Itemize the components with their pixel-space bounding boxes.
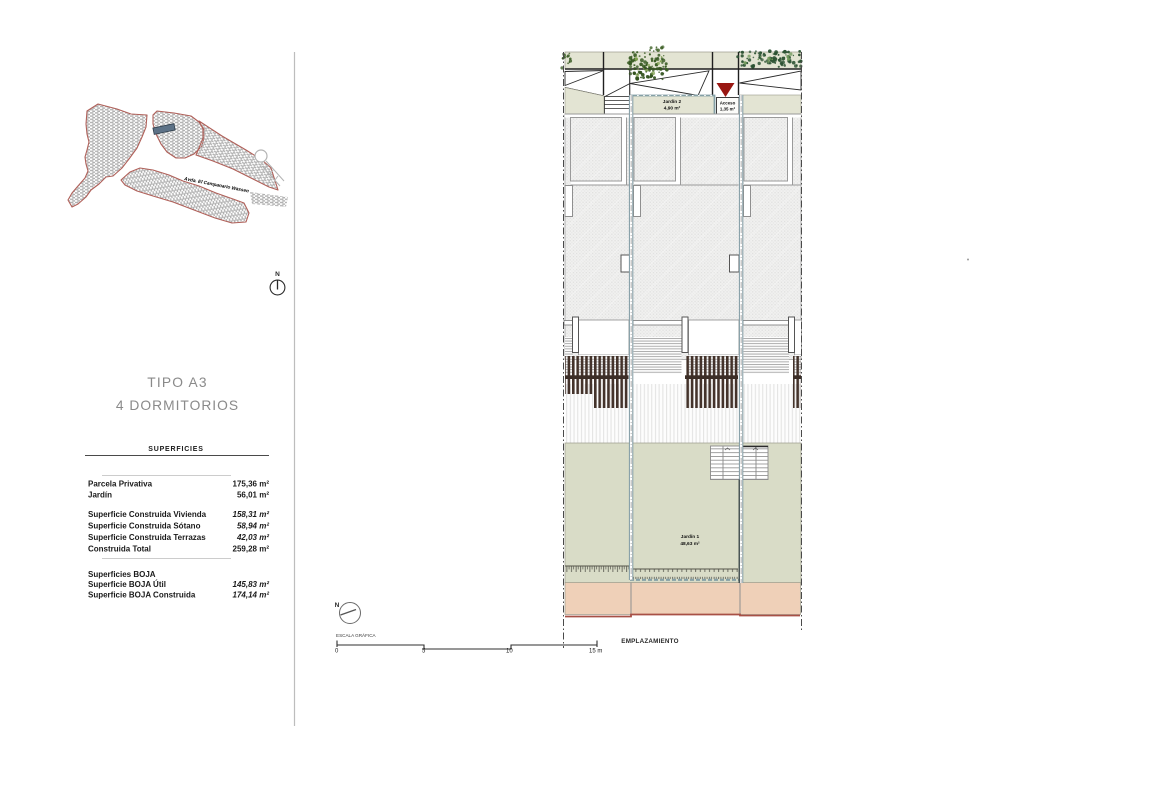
svg-text:0: 0 xyxy=(335,649,339,655)
svg-text:4,90 m²: 4,90 m² xyxy=(664,106,681,112)
svg-text:58,94 m²: 58,94 m² xyxy=(237,522,269,531)
svg-text:42,03 m²: 42,03 m² xyxy=(236,533,269,542)
svg-text:Superficies BOJA: Superficies BOJA xyxy=(88,570,156,579)
svg-text:10: 10 xyxy=(506,649,513,655)
svg-text:Superficie Construida Terrazas: Superficie Construida Terrazas xyxy=(88,533,206,542)
svg-text:Acceso: Acceso xyxy=(720,101,736,106)
svg-text:4 DORMITORIOS: 4 DORMITORIOS xyxy=(116,398,239,413)
svg-text:175,36 m²: 175,36 m² xyxy=(233,480,270,489)
svg-text:Superficie Construida Sótano: Superficie Construida Sótano xyxy=(88,522,201,531)
svg-text:SUPERFICIES: SUPERFICIES xyxy=(148,446,203,453)
svg-text:48,63 m²: 48,63 m² xyxy=(680,541,700,547)
svg-text:Superficie Construida Vivienda: Superficie Construida Vivienda xyxy=(88,510,207,519)
svg-text:145,83 m²: 145,83 m² xyxy=(233,580,270,589)
svg-text:158,31 m²: 158,31 m² xyxy=(233,510,270,519)
svg-text:TIPO A3: TIPO A3 xyxy=(147,375,208,390)
svg-text:174,14 m²: 174,14 m² xyxy=(233,591,270,600)
svg-text:ESCALA GRÁFICA: ESCALA GRÁFICA xyxy=(336,632,377,638)
svg-text:1,35 m²: 1,35 m² xyxy=(720,107,736,112)
svg-text:Jardín 2: Jardín 2 xyxy=(663,99,682,105)
svg-text:Construida Total: Construida Total xyxy=(88,545,151,554)
svg-text:Parcela Privativa: Parcela Privativa xyxy=(88,480,153,489)
svg-text:259,28 m²: 259,28 m² xyxy=(233,545,270,554)
svg-text:15 m: 15 m xyxy=(589,649,602,655)
svg-text:Superficie BOJA Útil: Superficie BOJA Útil xyxy=(88,580,166,589)
svg-text:Superficie BOJA Construida: Superficie BOJA Construida xyxy=(88,591,196,600)
svg-text:EMPLAZAMIENTO: EMPLAZAMIENTO xyxy=(621,638,678,645)
svg-text:Jardín: Jardín xyxy=(88,491,112,500)
svg-text:N: N xyxy=(275,271,280,278)
svg-text:56,01 m²: 56,01 m² xyxy=(237,491,269,500)
svg-text:Jardín 1: Jardín 1 xyxy=(681,534,700,540)
svg-text:N: N xyxy=(335,602,340,609)
